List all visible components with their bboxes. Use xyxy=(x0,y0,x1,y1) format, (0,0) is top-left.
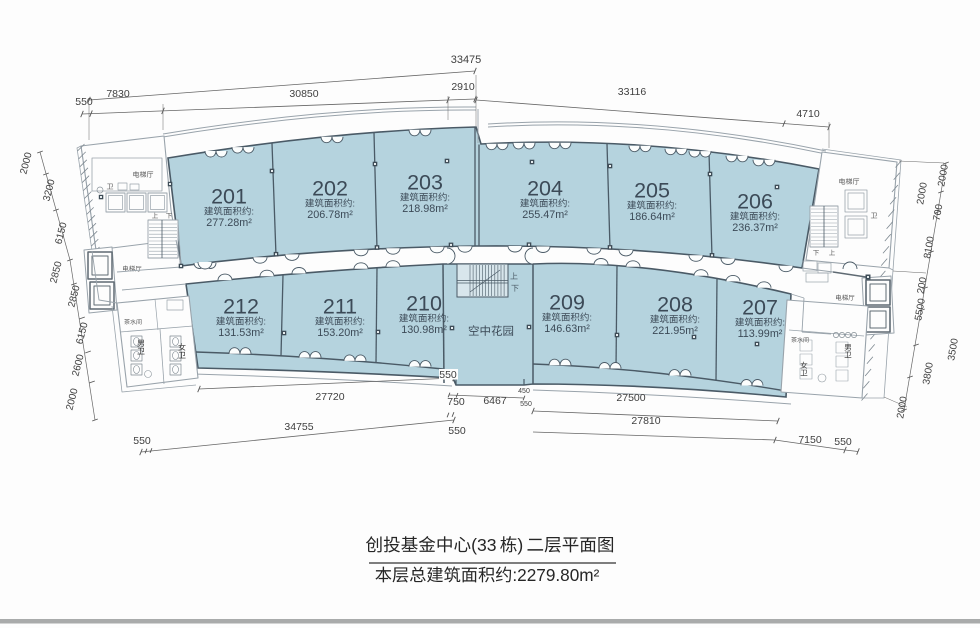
svg-text:255.47m²: 255.47m² xyxy=(522,209,568,221)
svg-text:2910: 2910 xyxy=(451,81,475,93)
svg-text::: : xyxy=(777,212,780,223)
svg-text:130.98m²: 130.98m² xyxy=(401,324,447,336)
svg-text:7150: 7150 xyxy=(798,434,822,446)
svg-text:33116: 33116 xyxy=(618,86,647,98)
svg-text:131.53m²: 131.53m² xyxy=(218,327,264,339)
svg-text::: : xyxy=(352,199,355,210)
svg-text:206: 206 xyxy=(737,190,773,214)
svg-text::2279.80m²: :2279.80m² xyxy=(512,565,599,585)
svg-text:236.37m²: 236.37m² xyxy=(732,222,778,234)
svg-text:204: 204 xyxy=(527,177,563,201)
svg-text::: : xyxy=(251,207,254,218)
svg-text:550: 550 xyxy=(834,436,852,448)
svg-text:550: 550 xyxy=(439,369,457,381)
svg-text:27720: 27720 xyxy=(315,391,344,403)
svg-text:201: 201 xyxy=(211,185,247,209)
svg-text:218.98m²: 218.98m² xyxy=(402,203,448,215)
svg-text::: : xyxy=(782,318,785,329)
svg-text:208: 208 xyxy=(657,293,693,317)
svg-text:221.95m²: 221.95m² xyxy=(652,325,698,337)
svg-text::: : xyxy=(446,314,449,325)
svg-text::: : xyxy=(567,199,570,210)
svg-text:211: 211 xyxy=(323,295,357,319)
svg-text:212: 212 xyxy=(223,295,259,319)
svg-text:750: 750 xyxy=(447,396,465,408)
svg-text:6467: 6467 xyxy=(483,395,507,407)
svg-text:113.99m²: 113.99m² xyxy=(738,328,783,340)
svg-text:30850: 30850 xyxy=(289,88,318,100)
svg-text:450: 450 xyxy=(518,388,530,395)
svg-text:550: 550 xyxy=(520,401,532,408)
svg-text::: : xyxy=(697,315,700,326)
svg-text:206.78m²: 206.78m² xyxy=(307,209,353,221)
svg-text:(33: (33 xyxy=(471,535,497,555)
svg-text:153.20m²: 153.20m² xyxy=(317,327,363,339)
svg-text:146.63m²: 146.63m² xyxy=(544,323,590,335)
svg-text:550: 550 xyxy=(133,435,151,447)
svg-text::: : xyxy=(589,313,592,324)
svg-text:): ) xyxy=(517,535,523,555)
svg-text:209: 209 xyxy=(549,291,585,315)
svg-text:550: 550 xyxy=(75,96,93,108)
svg-text:550: 550 xyxy=(448,425,466,437)
svg-text:34755: 34755 xyxy=(284,421,313,433)
svg-text::: : xyxy=(447,193,450,204)
svg-text:186.64m²: 186.64m² xyxy=(629,211,675,223)
svg-text:207: 207 xyxy=(742,296,778,320)
svg-text:202: 202 xyxy=(312,177,348,201)
svg-text:27500: 27500 xyxy=(616,392,645,404)
svg-text::: : xyxy=(674,201,677,212)
svg-text:210: 210 xyxy=(406,292,442,316)
svg-text::: : xyxy=(362,317,365,328)
svg-text:4710: 4710 xyxy=(796,108,820,120)
svg-text:27810: 27810 xyxy=(631,415,660,427)
svg-text:277.28m²: 277.28m² xyxy=(206,217,252,229)
svg-text:7830: 7830 xyxy=(106,88,130,100)
svg-text:205: 205 xyxy=(634,179,670,203)
svg-text::: : xyxy=(263,317,266,328)
svg-text:203: 203 xyxy=(407,171,443,195)
svg-text:33475: 33475 xyxy=(451,54,482,66)
